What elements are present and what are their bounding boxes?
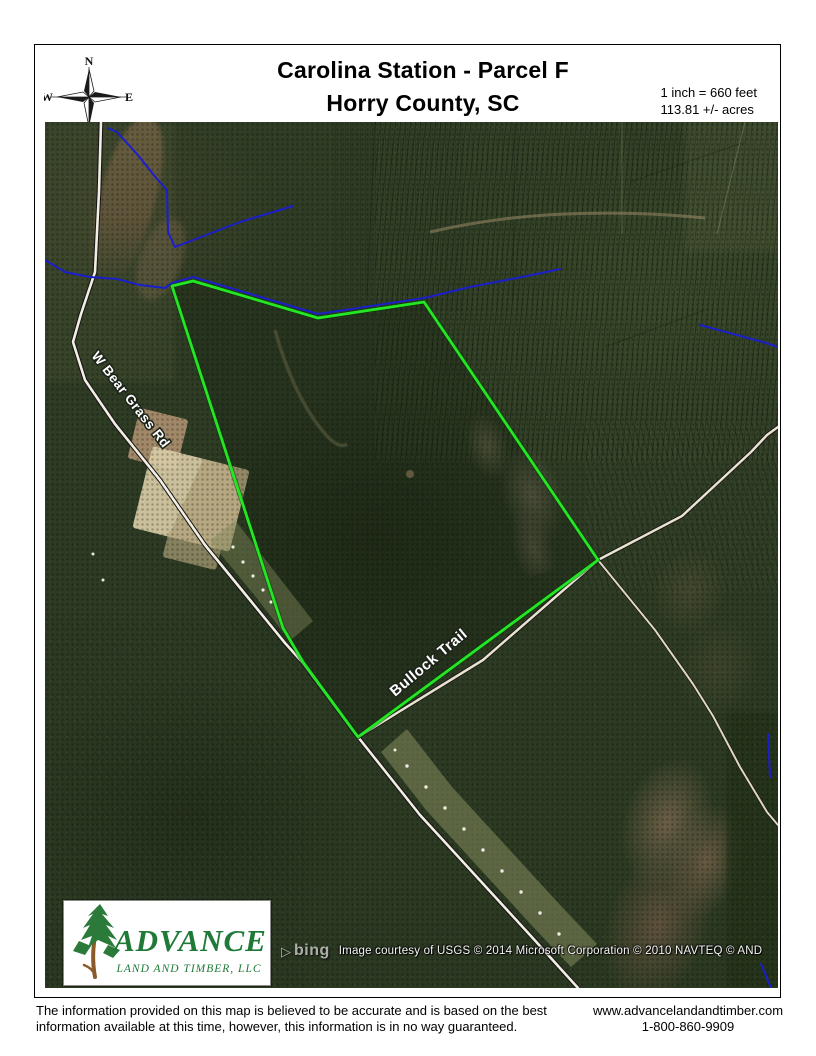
company-logo: ADVANCE LAND AND TIMBER, LLC: [63, 900, 271, 986]
disclaimer-line-1: The information provided on this map is …: [36, 1003, 576, 1019]
title-line-2: Horry County, SC: [160, 87, 686, 120]
disclaimer: The information provided on this map is …: [36, 1003, 576, 1034]
dirt-path: [430, 213, 705, 232]
compass-e-label: E: [125, 90, 133, 104]
compass-n-label: N: [85, 55, 94, 68]
contact-info: www.advancelandandtimber.com 1-800-860-9…: [590, 1003, 786, 1034]
website-url: www.advancelandandtimber.com: [590, 1003, 786, 1019]
house-lots: [381, 729, 597, 967]
disclaimer-line-2: information available at this time, howe…: [36, 1019, 576, 1035]
title-line-1: Carolina Station - Parcel F: [160, 54, 686, 87]
map-overlay: W Bear Grass Rd Bullock Trail: [45, 122, 778, 988]
phone-number: 1-800-860-9909: [590, 1019, 786, 1035]
acreage: 113.81 +/- acres: [661, 101, 758, 118]
bing-logo: ▷ bing: [281, 942, 330, 960]
logo-subtitle: LAND AND TIMBER, LLC: [115, 963, 261, 975]
scale-info: 1 inch = 660 feet 113.81 +/- acres: [661, 84, 758, 118]
compass-w-label: W: [44, 90, 53, 104]
road-label-w-bear-grass: W Bear Grass Rd: [89, 349, 173, 451]
imagery-credit: Image courtesy of USGS © 2014 Microsoft …: [339, 945, 763, 957]
map-attribution: ▷ bing Image courtesy of USGS © 2014 Mic…: [281, 942, 762, 960]
pine-tree-icon: [73, 904, 120, 977]
map-sheet: N S W E Carolina Station - Parcel F Horr…: [0, 0, 816, 1056]
bing-icon: ▷: [281, 945, 291, 958]
parcel-interior: [172, 281, 598, 737]
bing-wordmark: bing: [294, 942, 330, 960]
aerial-map: W Bear Grass Rd Bullock Trail ▷ bing Ima…: [45, 122, 778, 988]
logo-name: ADVANCE: [112, 923, 267, 958]
map-title: Carolina Station - Parcel F Horry County…: [160, 54, 686, 120]
scale-ratio: 1 inch = 660 feet: [661, 84, 758, 101]
